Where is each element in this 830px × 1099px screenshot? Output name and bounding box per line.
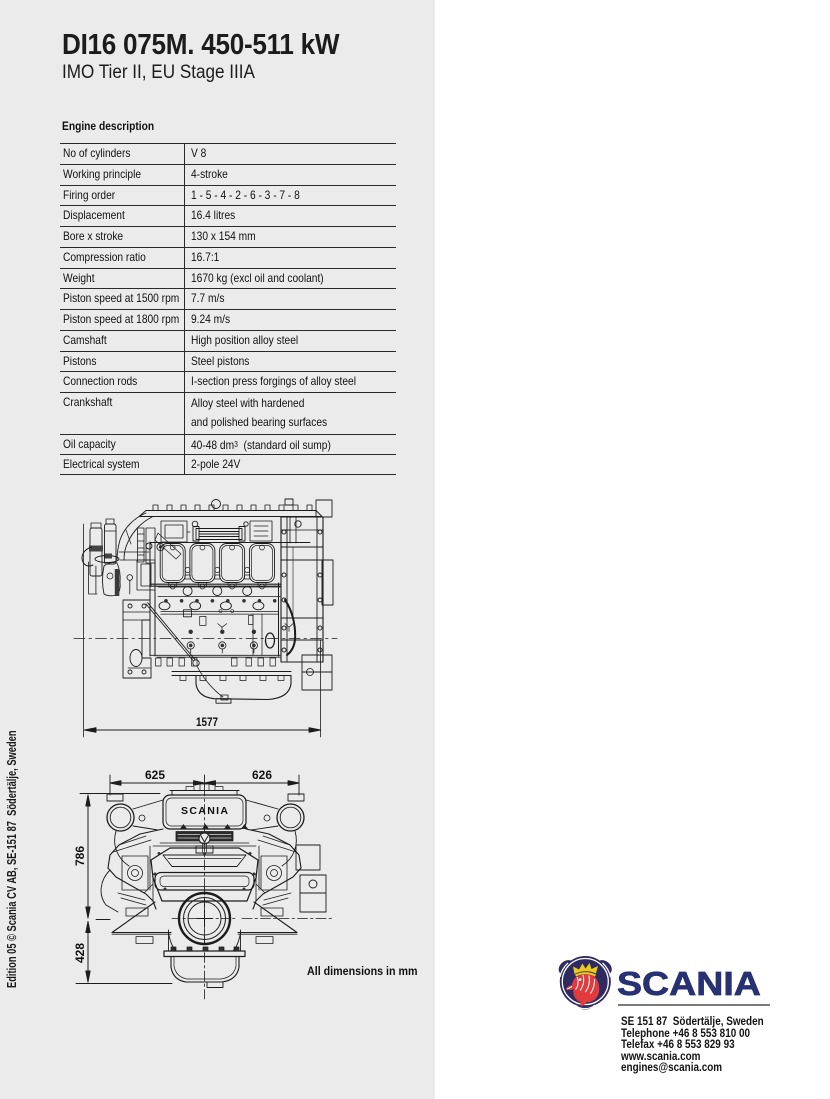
- svg-text:626: 626: [252, 770, 272, 782]
- svg-text:786: 786: [75, 846, 87, 866]
- svg-text:SCANIA: SCANIA: [181, 805, 229, 817]
- svg-text:625: 625: [145, 770, 166, 782]
- svg-text:428: 428: [75, 942, 87, 963]
- svg-text:1577: 1577: [196, 717, 218, 729]
